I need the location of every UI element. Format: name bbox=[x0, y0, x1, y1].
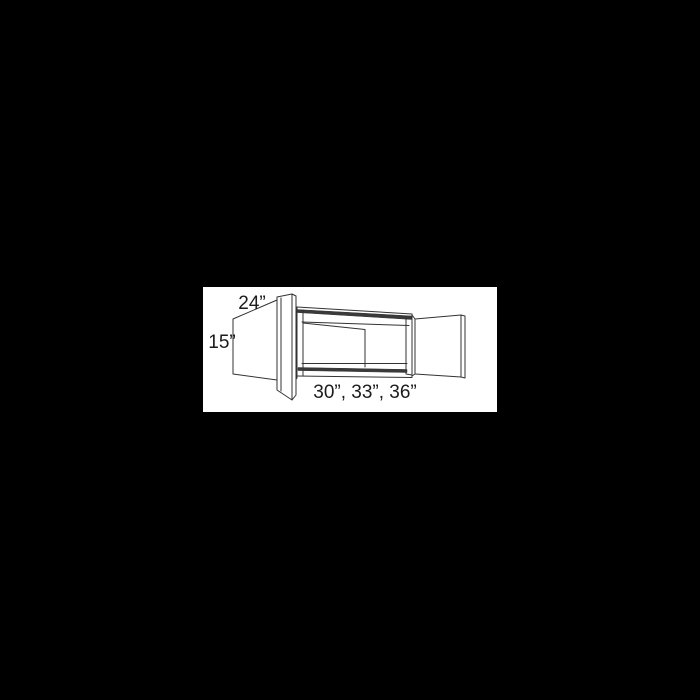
diagram-canvas: 24” 15” 30”, 33”, 36” bbox=[203, 287, 497, 412]
black-background: 24” 15” 30”, 33”, 36” bbox=[0, 0, 700, 700]
height-dimension-label: 15” bbox=[208, 332, 235, 353]
depth-dimension-label: 24” bbox=[238, 293, 265, 314]
cabinet-diagram: 24” 15” 30”, 33”, 36” bbox=[203, 287, 497, 412]
right-door bbox=[412, 315, 465, 378]
cabinet-box bbox=[286, 298, 412, 391]
right-door-edge-face bbox=[461, 315, 465, 378]
right-door-front-face bbox=[415, 315, 461, 377]
box-bottom-outer-edge bbox=[297, 376, 412, 378]
right-stile-bottom-tick bbox=[406, 374, 412, 375]
left-door-edge-face bbox=[292, 294, 296, 400]
width-options-label: 30”, 33”, 36” bbox=[313, 382, 417, 403]
box-bottom-shaded-band bbox=[298, 368, 407, 373]
left-door-front-face bbox=[277, 294, 292, 400]
